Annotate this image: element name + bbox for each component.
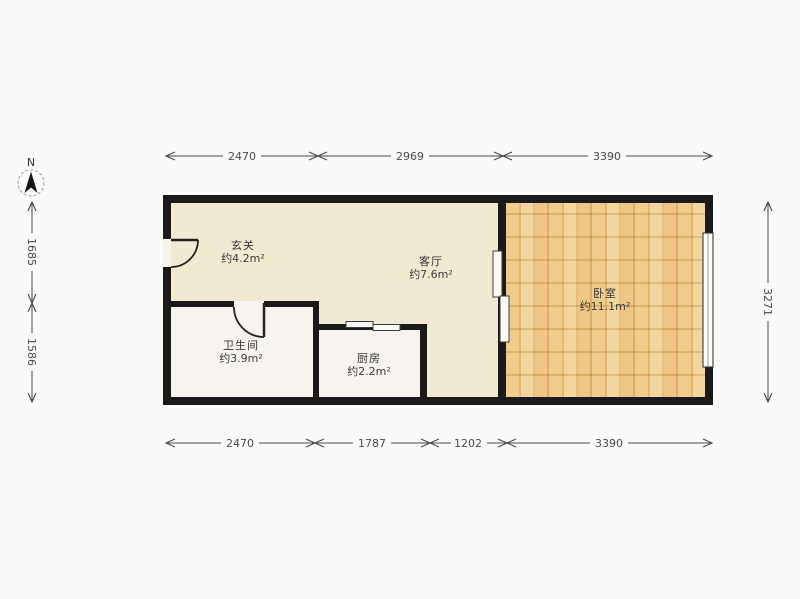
dim-left-1: 1685 bbox=[25, 238, 38, 266]
dimension-chain-right: 3271 bbox=[761, 202, 775, 402]
dim-bottom-4: 3390 bbox=[595, 437, 623, 450]
dim-top-1: 2470 bbox=[228, 150, 256, 163]
dim-top-2: 2969 bbox=[396, 150, 424, 163]
wall-kitchen-top bbox=[313, 324, 427, 330]
compass-north-label: N bbox=[27, 156, 35, 169]
dim-bottom-3: 1202 bbox=[454, 437, 482, 450]
wall-bathroom-top bbox=[163, 301, 319, 307]
dim-bottom-2: 1787 bbox=[358, 437, 386, 450]
dimension-chain-top: 2470 2969 3390 bbox=[166, 150, 712, 164]
wall-outer-left bbox=[163, 195, 171, 405]
room-name: 厨房 bbox=[347, 353, 391, 366]
dim-right-1: 3271 bbox=[761, 288, 774, 316]
room-area: 约11.1m² bbox=[580, 301, 631, 314]
room-name: 卫生间 bbox=[219, 340, 263, 353]
floorplan-canvas: N 2470 2969 3390 2470 1787 120 bbox=[0, 0, 800, 599]
room-label-kitchen: 厨房 约2.2m² bbox=[347, 353, 391, 378]
room-area: 约7.6m² bbox=[409, 269, 453, 282]
room-name: 卧室 bbox=[580, 288, 631, 301]
wall-kitchen-right bbox=[420, 324, 427, 397]
wall-outer-right bbox=[705, 195, 713, 405]
room-name: 玄关 bbox=[221, 240, 265, 253]
room-label-bedroom: 卧室 约11.1m² bbox=[580, 288, 631, 313]
dim-top-3: 3390 bbox=[593, 150, 621, 163]
room-area: 约4.2m² bbox=[221, 253, 265, 266]
room-name: 客厅 bbox=[409, 256, 453, 269]
dim-left-2: 1586 bbox=[25, 338, 38, 366]
wall-bathroom-right bbox=[313, 301, 319, 397]
room-area: 约2.2m² bbox=[347, 366, 391, 379]
room-label-living: 客厅 约7.6m² bbox=[409, 256, 453, 281]
dim-bottom-1: 2470 bbox=[226, 437, 254, 450]
compass: N bbox=[18, 156, 44, 196]
north-arrow-icon bbox=[25, 172, 38, 194]
wall-bedroom-partition bbox=[498, 195, 506, 405]
room-label-entrance: 玄关 约4.2m² bbox=[221, 240, 265, 265]
compass-circle bbox=[18, 170, 44, 196]
dimension-chain-bottom: 2470 1787 1202 3390 bbox=[166, 437, 712, 451]
wall-outer-top bbox=[163, 195, 713, 203]
dimension-chain-left: 1685 1586 bbox=[25, 202, 39, 402]
room-label-bathroom: 卫生间 约3.9m² bbox=[219, 340, 263, 365]
wall-outer-bottom bbox=[163, 397, 713, 405]
room-area: 约3.9m² bbox=[219, 353, 263, 366]
